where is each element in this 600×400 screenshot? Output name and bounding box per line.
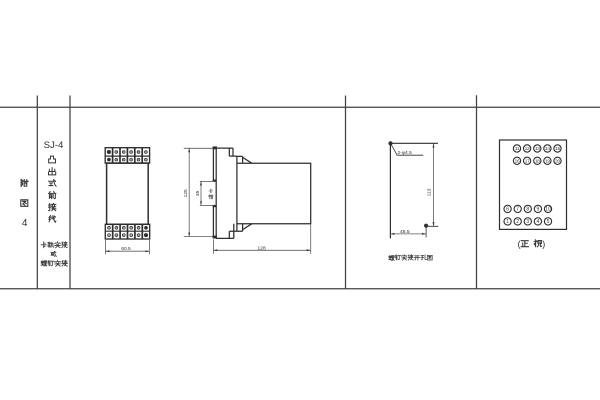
- svg-text:48.5: 48.5: [400, 229, 410, 235]
- svg-text:13: 13: [535, 146, 540, 151]
- svg-text:128: 128: [258, 245, 266, 251]
- svg-text:5: 5: [547, 219, 550, 225]
- svg-text:15: 15: [555, 146, 560, 151]
- svg-text:2-φ4.5: 2-φ4.5: [398, 150, 413, 156]
- svg-text:SJ-4: SJ-4: [44, 140, 64, 151]
- svg-text:60.5: 60.5: [121, 246, 131, 252]
- svg-text:19: 19: [545, 159, 550, 164]
- svg-text:8: 8: [526, 207, 529, 213]
- svg-text:11: 11: [515, 146, 520, 151]
- svg-text:113: 113: [426, 188, 432, 196]
- svg-text:4: 4: [22, 218, 28, 229]
- svg-text:1: 1: [506, 219, 509, 225]
- svg-text:16: 16: [515, 159, 520, 164]
- svg-text:125: 125: [183, 189, 189, 197]
- svg-text:): ): [542, 239, 545, 249]
- svg-text:10: 10: [545, 207, 551, 213]
- svg-text:17: 17: [525, 159, 530, 164]
- svg-text:7: 7: [516, 207, 519, 213]
- svg-text:(: (: [518, 239, 521, 249]
- svg-text:12: 12: [525, 146, 530, 151]
- svg-text:4: 4: [537, 219, 540, 225]
- svg-text:35: 35: [195, 190, 201, 196]
- svg-text:2: 2: [516, 219, 519, 225]
- svg-text:18: 18: [535, 159, 540, 164]
- svg-text:14: 14: [545, 146, 550, 151]
- svg-text:9: 9: [537, 207, 540, 213]
- svg-text:20: 20: [555, 159, 560, 164]
- svg-text:3: 3: [526, 219, 529, 225]
- svg-text:6: 6: [506, 207, 509, 213]
